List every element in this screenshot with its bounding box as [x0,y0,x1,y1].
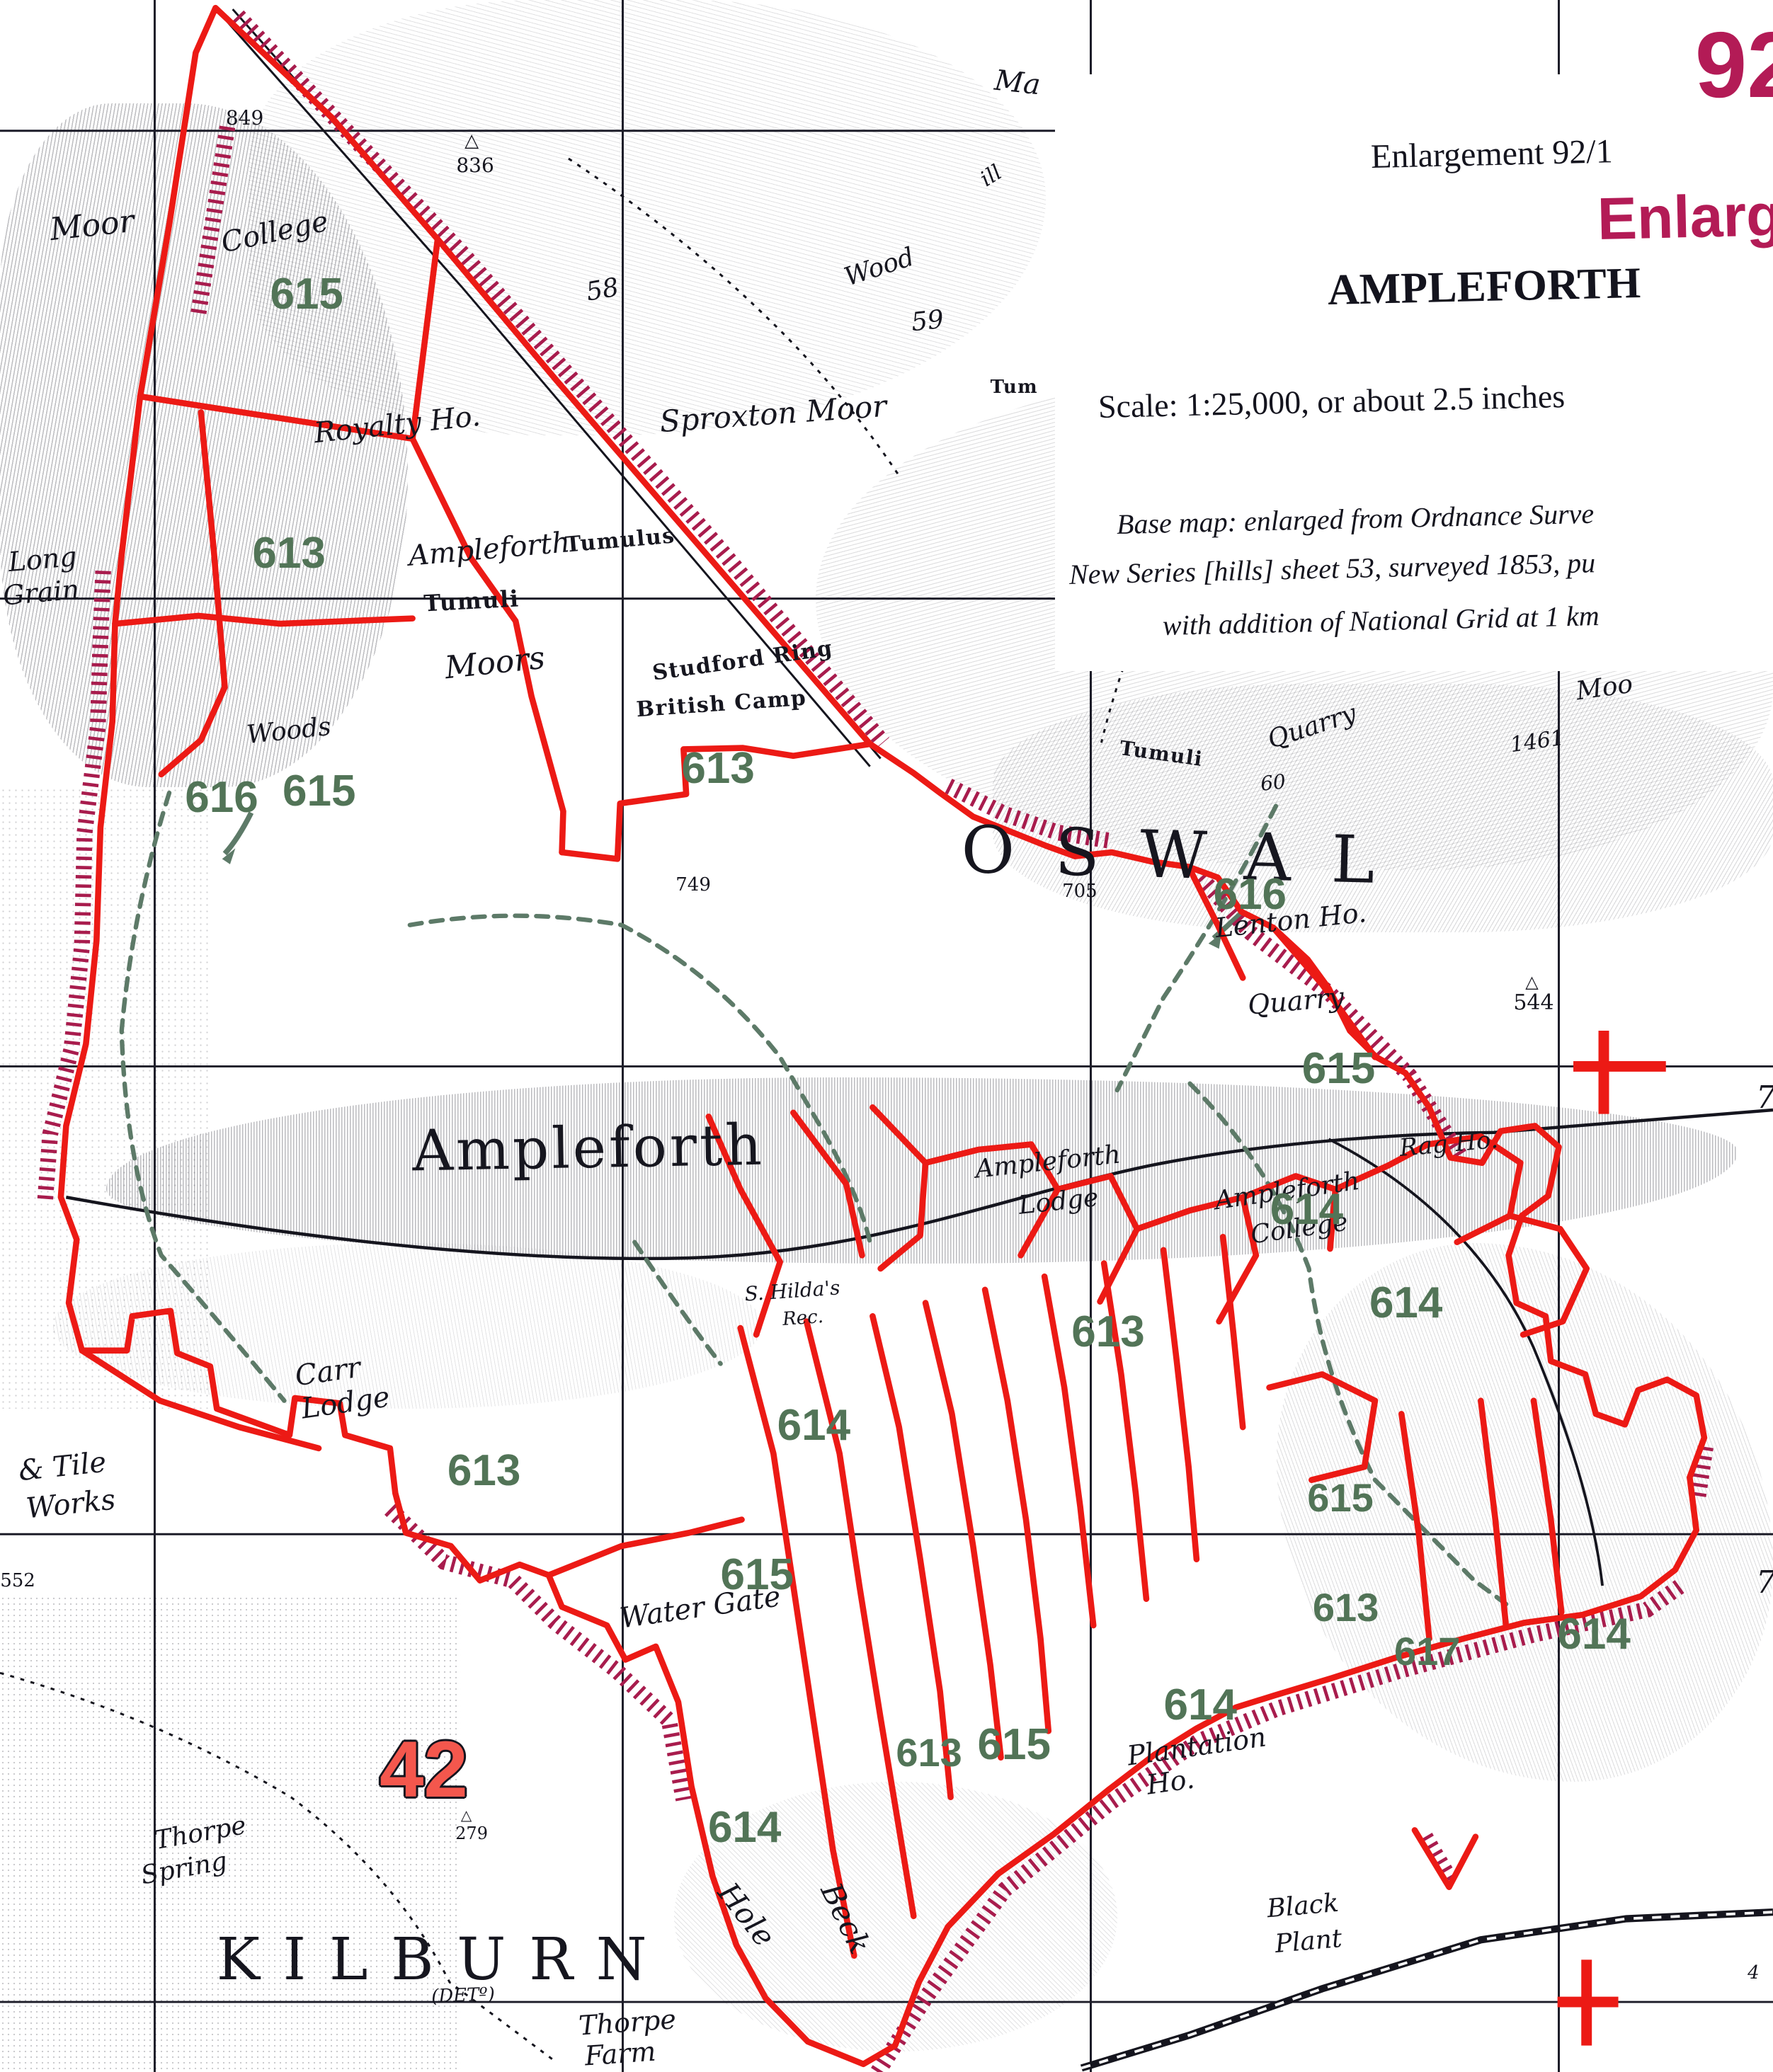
spot-height-279: 279 [455,1825,488,1842]
parcel-614-far-e: 614 [1557,1613,1630,1656]
label-tumuli-ne: Tum [991,378,1038,396]
parcel-613-camp: 613 [681,747,754,791]
grid-number-7-upper: 7 [1756,1082,1773,1114]
parcel-613-sw: 613 [447,1449,520,1493]
parcel-614-s: 614 [708,1806,781,1850]
spot-height-836: 836 [456,156,494,176]
label-ampleforth-village: Ampleforth [412,1116,765,1179]
parcel-615-college: 615 [270,273,343,316]
spot-height-544: 544 [1513,992,1553,1014]
trig-point-279-icon: △ [461,1808,472,1822]
grid-cross-east [1573,1031,1666,1114]
base-map-line2: New Series [hills] sheet 53, surveyed 18… [1069,546,1596,591]
label-quarry-s: Quarry [1247,983,1345,1019]
label-long-grain-2: Grain [1,576,80,609]
grid-number-7-lower: 7 [1756,1567,1773,1598]
base-map-line1: Base map: enlarged from Ordnance Surve [1117,496,1595,540]
grid-number-4: 4 [1748,1964,1760,1982]
sheet-name: AMPLEFORTH [1327,258,1641,316]
trig-point-836-icon: △ [464,132,479,150]
parcel-615-w: 615 [283,769,355,813]
label-moor-nw: Moor [49,206,136,246]
parcel-615-e: 615 [1302,1047,1375,1091]
field-number-59: 59 [910,307,945,336]
trig-point-544-icon: △ [1525,973,1538,990]
parcel-614-college: 614 [1270,1188,1343,1232]
parcel-613-se: 613 [1313,1588,1379,1627]
parcel-615-plantation: 615 [978,1723,1051,1767]
parcel-613-village: 613 [1071,1310,1144,1354]
spot-height-849: 849 [226,108,263,128]
field-number-60: 60 [1260,772,1287,795]
base-map-line3: with addition of National Grid at 1 km [1162,599,1600,642]
scale-line: Scale: 1:25,000, or about 2.5 inches [1098,377,1565,425]
label-black-plant-1: Black [1266,1890,1340,1922]
parcel-613-nw: 613 [252,532,325,576]
label-black-plant-2: Plant [1274,1926,1343,1957]
enlargement-magenta-fragment: Enlargement [1596,177,1773,254]
label-tumuli-nw: Tumuli [423,587,520,614]
enlargement-line: Enlargement 92/1 [1370,132,1613,176]
label-fragment-ma: Ma [993,67,1042,100]
parcel-615-se: 615 [1307,1478,1373,1518]
title-box: Enlargement 92/1 Enlargement AMPLEFORTH … [1055,74,1773,671]
label-carr-lodge-1: Carr [294,1353,363,1390]
spot-height-552: 552 [0,1572,35,1590]
label-long-grain-1: Long [7,543,78,576]
label-st-hildas-2: Rec. [782,1307,824,1329]
parcel-616-w: 616 [185,776,258,820]
label-thorpe-farm-2: Farm [584,2037,657,2069]
label-oswal: OSWAL [960,817,1415,894]
grid-cross-marks [1558,1031,1666,2046]
spot-height-705: 705 [1062,882,1098,900]
spot-height-749: 749 [675,876,711,894]
grid-number-42: 42 [380,1730,468,1809]
railway [1081,1912,1773,2068]
label-kilburn-det: (DETº) [431,1985,495,2005]
field-number-58: 58 [585,275,621,305]
map-sheet: Enlargement 92/1 Enlargement AMPLEFORTH … [0,0,1773,2072]
grid-cross-south-east [1558,1959,1619,2045]
label-plantation-2: Ho. [1145,1765,1196,1799]
parcel-614-e: 614 [1369,1281,1442,1325]
parcel-614-c: 614 [777,1404,850,1448]
parcel-614-plantation: 614 [1163,1683,1236,1727]
page-number: 92 [1695,18,1773,112]
label-kilburn: KILBURN [217,1931,671,1989]
parcel-613-plantation: 613 [896,1733,962,1773]
parcel-617: 617 [1394,1632,1460,1671]
label-thorpe-farm-1: Thorpe [578,2005,677,2039]
label-st-hildas-1: S. Hilda's [744,1278,841,1304]
